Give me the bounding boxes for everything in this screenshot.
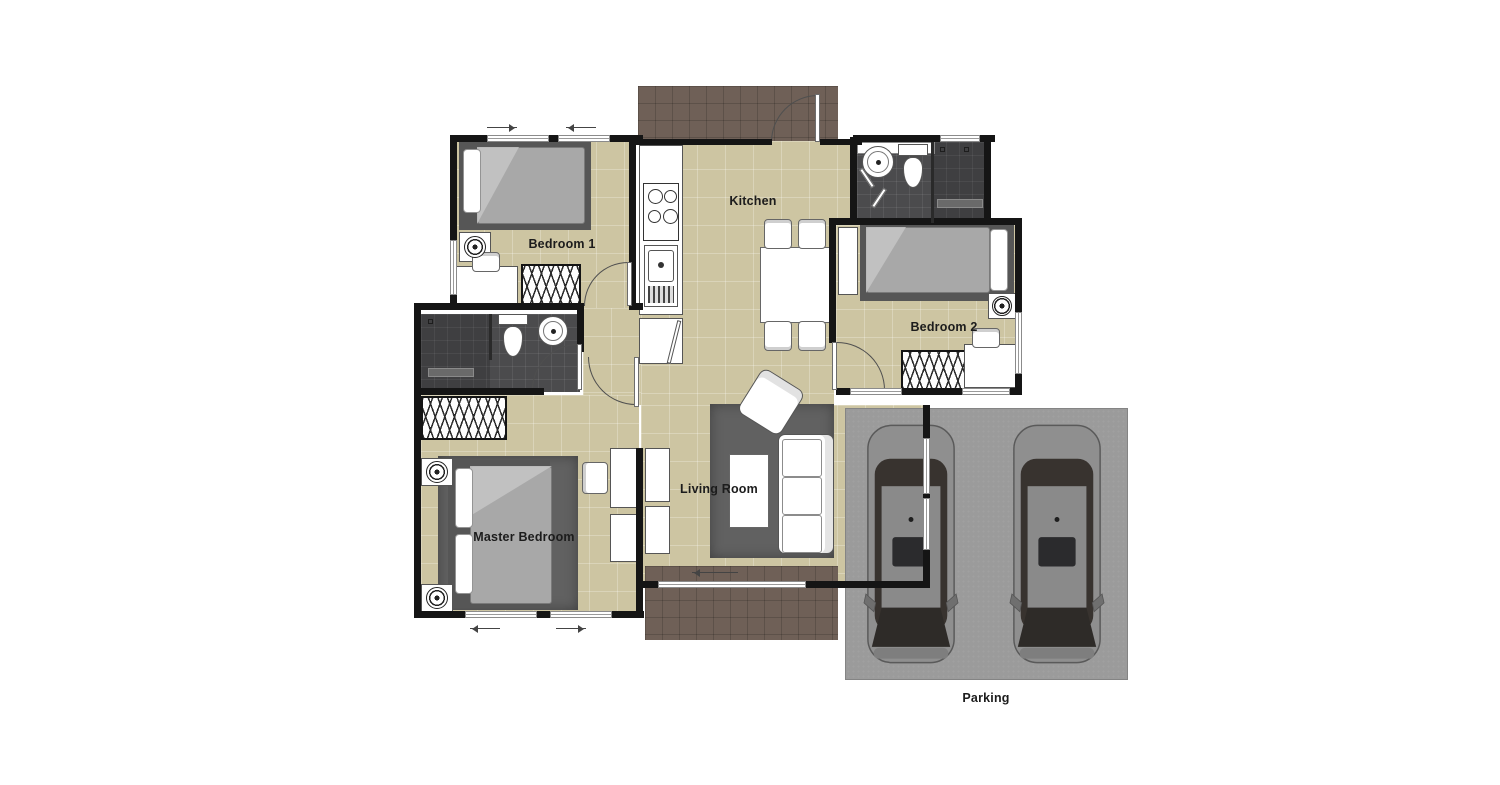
window [487, 135, 549, 142]
window [923, 498, 930, 550]
bed-pillow [990, 229, 1008, 291]
desk [610, 448, 637, 508]
room-label-master-bedroom: Master Bedroom [473, 530, 574, 544]
sofa-cushion [782, 477, 822, 515]
car [1008, 420, 1106, 668]
dining-chair [798, 219, 826, 249]
cabinet [645, 448, 670, 502]
room-label-parking: Parking [962, 691, 1009, 705]
burner-icon [664, 190, 677, 203]
sofa [778, 434, 834, 554]
bed-pillow [463, 149, 481, 213]
front-door-leaf [815, 94, 820, 142]
wall [418, 303, 584, 310]
burner-icon [648, 210, 661, 223]
toilet-tank [498, 314, 528, 325]
window [450, 240, 457, 295]
wall [636, 139, 772, 145]
window [923, 438, 930, 494]
bed-pillow [455, 534, 473, 594]
car [862, 420, 960, 668]
kitchen-sink [644, 245, 678, 307]
burner-icon [663, 209, 678, 224]
shower-divider [489, 314, 492, 360]
wall [850, 137, 857, 225]
window-swing-mark [470, 628, 500, 629]
bathroom-top-shower [933, 142, 988, 223]
master-bathroom-shower [421, 314, 490, 392]
shower-bench [937, 199, 983, 208]
room-label-bedroom1: Bedroom 1 [528, 237, 595, 251]
lamp-icon [992, 296, 1012, 316]
floor-plan: Bedroom 1 Kitchen Bedroom 2 Master Bedro… [0, 0, 1500, 785]
dining-table [760, 247, 832, 323]
room-label-living-room: Living Room [680, 482, 758, 496]
window [550, 611, 612, 618]
drain-grill [648, 286, 674, 303]
dining-chair [764, 219, 792, 249]
wall [418, 388, 544, 395]
wardrobe [421, 396, 507, 440]
wardrobe [521, 264, 581, 306]
window [850, 388, 902, 395]
sink-drain [876, 160, 881, 165]
door-leaf [832, 342, 837, 390]
bed-pillow [455, 468, 473, 528]
dining-chair [798, 321, 826, 351]
desk [454, 266, 518, 308]
room-label-kitchen: Kitchen [729, 194, 776, 208]
dining-chair [764, 321, 792, 351]
window-swing-mark [556, 628, 586, 629]
floor-drain [428, 319, 433, 324]
burner-icon [648, 189, 663, 204]
window [962, 388, 1010, 395]
bathroom-sink [538, 316, 568, 346]
lamp-icon [426, 461, 448, 483]
window [465, 611, 537, 618]
faucet-icon [658, 262, 664, 268]
desk [964, 344, 1018, 388]
wall [414, 303, 421, 618]
sofa-cushion [782, 439, 822, 477]
sideboard [838, 227, 858, 295]
door-leaf [577, 344, 582, 390]
floor-drain [964, 147, 969, 152]
lamp-icon [464, 236, 486, 258]
terrace [645, 566, 838, 640]
toilet-tank [898, 144, 928, 156]
sliding-door [658, 581, 806, 588]
floor-drain [940, 147, 945, 152]
door-leaf [627, 262, 632, 306]
window-swing-mark [566, 127, 596, 128]
cabinet [610, 514, 637, 562]
sofa-cushion [782, 515, 822, 553]
door-leaf [634, 357, 639, 407]
window [558, 135, 610, 142]
lamp-icon [426, 587, 448, 609]
wall [829, 218, 836, 343]
window-swing-mark [487, 127, 517, 128]
shower-divider [931, 142, 934, 223]
wall [636, 448, 643, 618]
wall [984, 137, 991, 225]
shower-bench [428, 368, 474, 377]
window [1015, 312, 1022, 374]
sink-drain [551, 329, 556, 334]
wardrobe [901, 350, 967, 392]
wall [923, 405, 930, 588]
wall [836, 218, 1022, 225]
cabinet [645, 506, 670, 554]
window [940, 135, 980, 142]
sliding-door-arrow [692, 572, 738, 573]
room-label-bedroom2: Bedroom 2 [910, 320, 977, 334]
stove [643, 183, 679, 241]
desk-chair [582, 462, 608, 494]
